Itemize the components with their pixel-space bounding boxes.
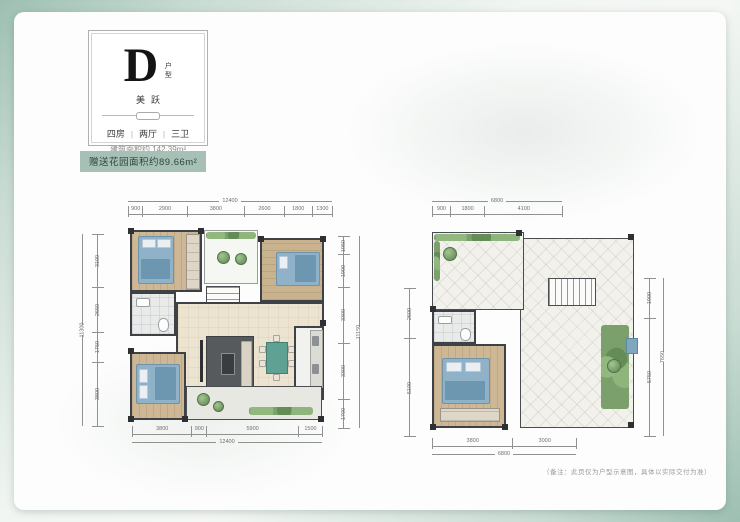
column — [320, 236, 326, 242]
dim-segment: 3800 — [432, 438, 512, 449]
dim-chain-left-right-plan: 2600 5100 — [404, 288, 416, 437]
column — [516, 230, 522, 236]
spec-separator: | — [163, 130, 165, 139]
bed — [442, 358, 490, 404]
living-rug — [206, 336, 254, 392]
divider — [102, 112, 194, 119]
dim-segment: 3300 — [338, 287, 350, 343]
dim-segment: 2600 — [244, 206, 284, 217]
dim-segment: 1900 — [338, 254, 350, 287]
dining-chair — [259, 360, 266, 367]
dim-total-right-left-plan: 11150 — [354, 236, 364, 428]
dim-segment: 2650 — [92, 287, 104, 332]
bed — [136, 364, 180, 404]
floor-plan-upper-level — [430, 230, 640, 436]
dining-chair — [273, 374, 280, 381]
unit-type-card: D 户型 美跃 四房|两厅|三卫 建筑面积约 142.39m² — [88, 30, 208, 146]
wardrobe — [186, 234, 200, 290]
dim-segment: 1800 — [284, 206, 312, 217]
dim-chain-left-left-plan: 3100 2650 1750 3800 — [92, 234, 104, 427]
coffee-table — [221, 353, 235, 375]
dim-segment: 2900 — [142, 206, 186, 217]
spec-separator: | — [131, 130, 133, 139]
patio-garden — [204, 230, 258, 284]
dim-segment: 3800 — [92, 362, 104, 426]
column — [318, 416, 324, 422]
gift-area-badge: 赠送花园面积约89.66m² — [80, 151, 206, 172]
sink — [438, 316, 452, 324]
dim-segment: 3800 — [187, 206, 245, 217]
master-bedroom — [130, 352, 186, 420]
plant — [443, 247, 457, 261]
staircase — [548, 278, 596, 306]
bed — [138, 236, 174, 284]
column — [628, 422, 634, 428]
column — [320, 320, 326, 326]
unit-type-subtitle: 美跃 — [92, 93, 204, 106]
bathroom — [432, 310, 476, 344]
column — [430, 424, 436, 430]
dim-total-top-left-plan: 12400 — [128, 197, 332, 205]
dim-segment: 3300 — [338, 343, 350, 399]
divider-pill — [136, 112, 160, 120]
column — [628, 234, 634, 240]
dim-chain-top-left-plan: 900 2900 3800 2600 1800 1300 — [128, 206, 333, 217]
toilet — [460, 328, 471, 341]
toilet — [158, 318, 169, 332]
sink — [136, 298, 150, 307]
hedge — [434, 241, 440, 281]
dim-chain-bottom-right-plan: 3800 3000 — [432, 438, 577, 449]
column — [258, 236, 264, 242]
dim-segment: 1050 — [338, 236, 350, 254]
roof-terrace-small — [432, 232, 524, 310]
kitchen-sink — [312, 364, 319, 374]
bathroom-top-left — [130, 292, 176, 336]
brochure-page: D 户型 美跃 四房|两厅|三卫 建筑面积约 142.39m² 赠送花园面积约8… — [0, 0, 740, 522]
unit-type-card-inner: D 户型 美跃 四房|两厅|三卫 建筑面积约 142.39m² — [91, 33, 205, 143]
column — [502, 424, 508, 430]
dim-total-bottom-left-plan: 12400 — [132, 438, 322, 446]
dim-segment: 1900 — [644, 278, 656, 318]
dim-segment: 5100 — [404, 338, 416, 436]
spec-baths: 三卫 — [171, 129, 189, 139]
dim-segment: 900 — [128, 206, 142, 217]
column — [430, 306, 436, 312]
dim-chain-bottom-left-plan: 3800 900 5900 1500 — [132, 426, 323, 437]
dim-total-left-left-plan: 11300 — [77, 234, 87, 426]
spec-rooms: 四房 — [107, 129, 125, 139]
dim-segment: 3100 — [92, 234, 104, 287]
spec-halls: 两厅 — [139, 129, 157, 139]
plant — [197, 393, 210, 406]
roof-terrace-large — [520, 238, 634, 428]
column — [182, 416, 188, 422]
dim-segment: 2600 — [404, 288, 416, 338]
disclaimer-footnote: （备注：此页仅为户型示意图，具体以实际交付为准） — [543, 466, 711, 476]
sofa — [241, 341, 252, 389]
unit-type-suffix: 户型 — [162, 62, 172, 80]
wardrobe — [440, 408, 500, 422]
dim-segment: 3800 — [132, 426, 191, 437]
cloud-decoration — [344, 42, 704, 222]
dining-chair — [259, 346, 266, 353]
plant — [213, 401, 224, 412]
dim-segment: 900 — [191, 426, 206, 437]
column — [128, 416, 134, 422]
dim-segment: 3000 — [512, 438, 576, 449]
ac-unit — [626, 338, 638, 354]
dim-segment: 1300 — [312, 206, 332, 217]
hedge — [434, 234, 520, 241]
dim-chain-right-left-plan: 1050 1900 3300 3300 1700 — [338, 236, 350, 429]
dim-segment: 1500 — [298, 426, 322, 437]
dining-table — [266, 342, 288, 374]
bedroom — [432, 344, 506, 428]
dim-segment: 4100 — [484, 206, 562, 217]
room-specs: 四房|两厅|三卫 — [92, 127, 204, 140]
dim-segment: 5750 — [644, 318, 656, 436]
plant — [235, 253, 247, 265]
dim-segment: 5900 — [206, 426, 298, 437]
stove — [312, 336, 319, 346]
floor-plan-lower-level — [128, 228, 332, 424]
tv-wall — [200, 340, 203, 382]
dim-segment: 900 — [432, 206, 450, 217]
dim-segment: 1750 — [92, 332, 104, 362]
hedge — [249, 407, 313, 415]
plant — [607, 359, 621, 373]
unit-type-letter: D — [124, 40, 159, 92]
dim-chain-top-right-plan: 900 1800 4100 — [432, 206, 563, 217]
balcony — [186, 386, 322, 420]
column — [198, 228, 204, 234]
dim-chain-right-right-plan: 1900 5750 — [644, 278, 656, 437]
dim-total-top-right-plan: 6800 — [432, 197, 562, 205]
column — [128, 228, 134, 234]
hedge — [206, 232, 256, 239]
bedroom-top-right — [260, 238, 324, 302]
plant — [217, 251, 230, 264]
dining-chair — [273, 335, 280, 342]
bedroom-top-left — [130, 230, 202, 292]
column — [128, 348, 134, 354]
kitchen — [294, 326, 324, 390]
bed — [276, 252, 320, 286]
dim-segment: 1700 — [338, 399, 350, 428]
dim-total-bottom-right-plan: 6800 — [432, 450, 576, 458]
dim-segment: 1800 — [450, 206, 485, 217]
dim-total-right-right-plan: 7650 — [658, 278, 668, 436]
